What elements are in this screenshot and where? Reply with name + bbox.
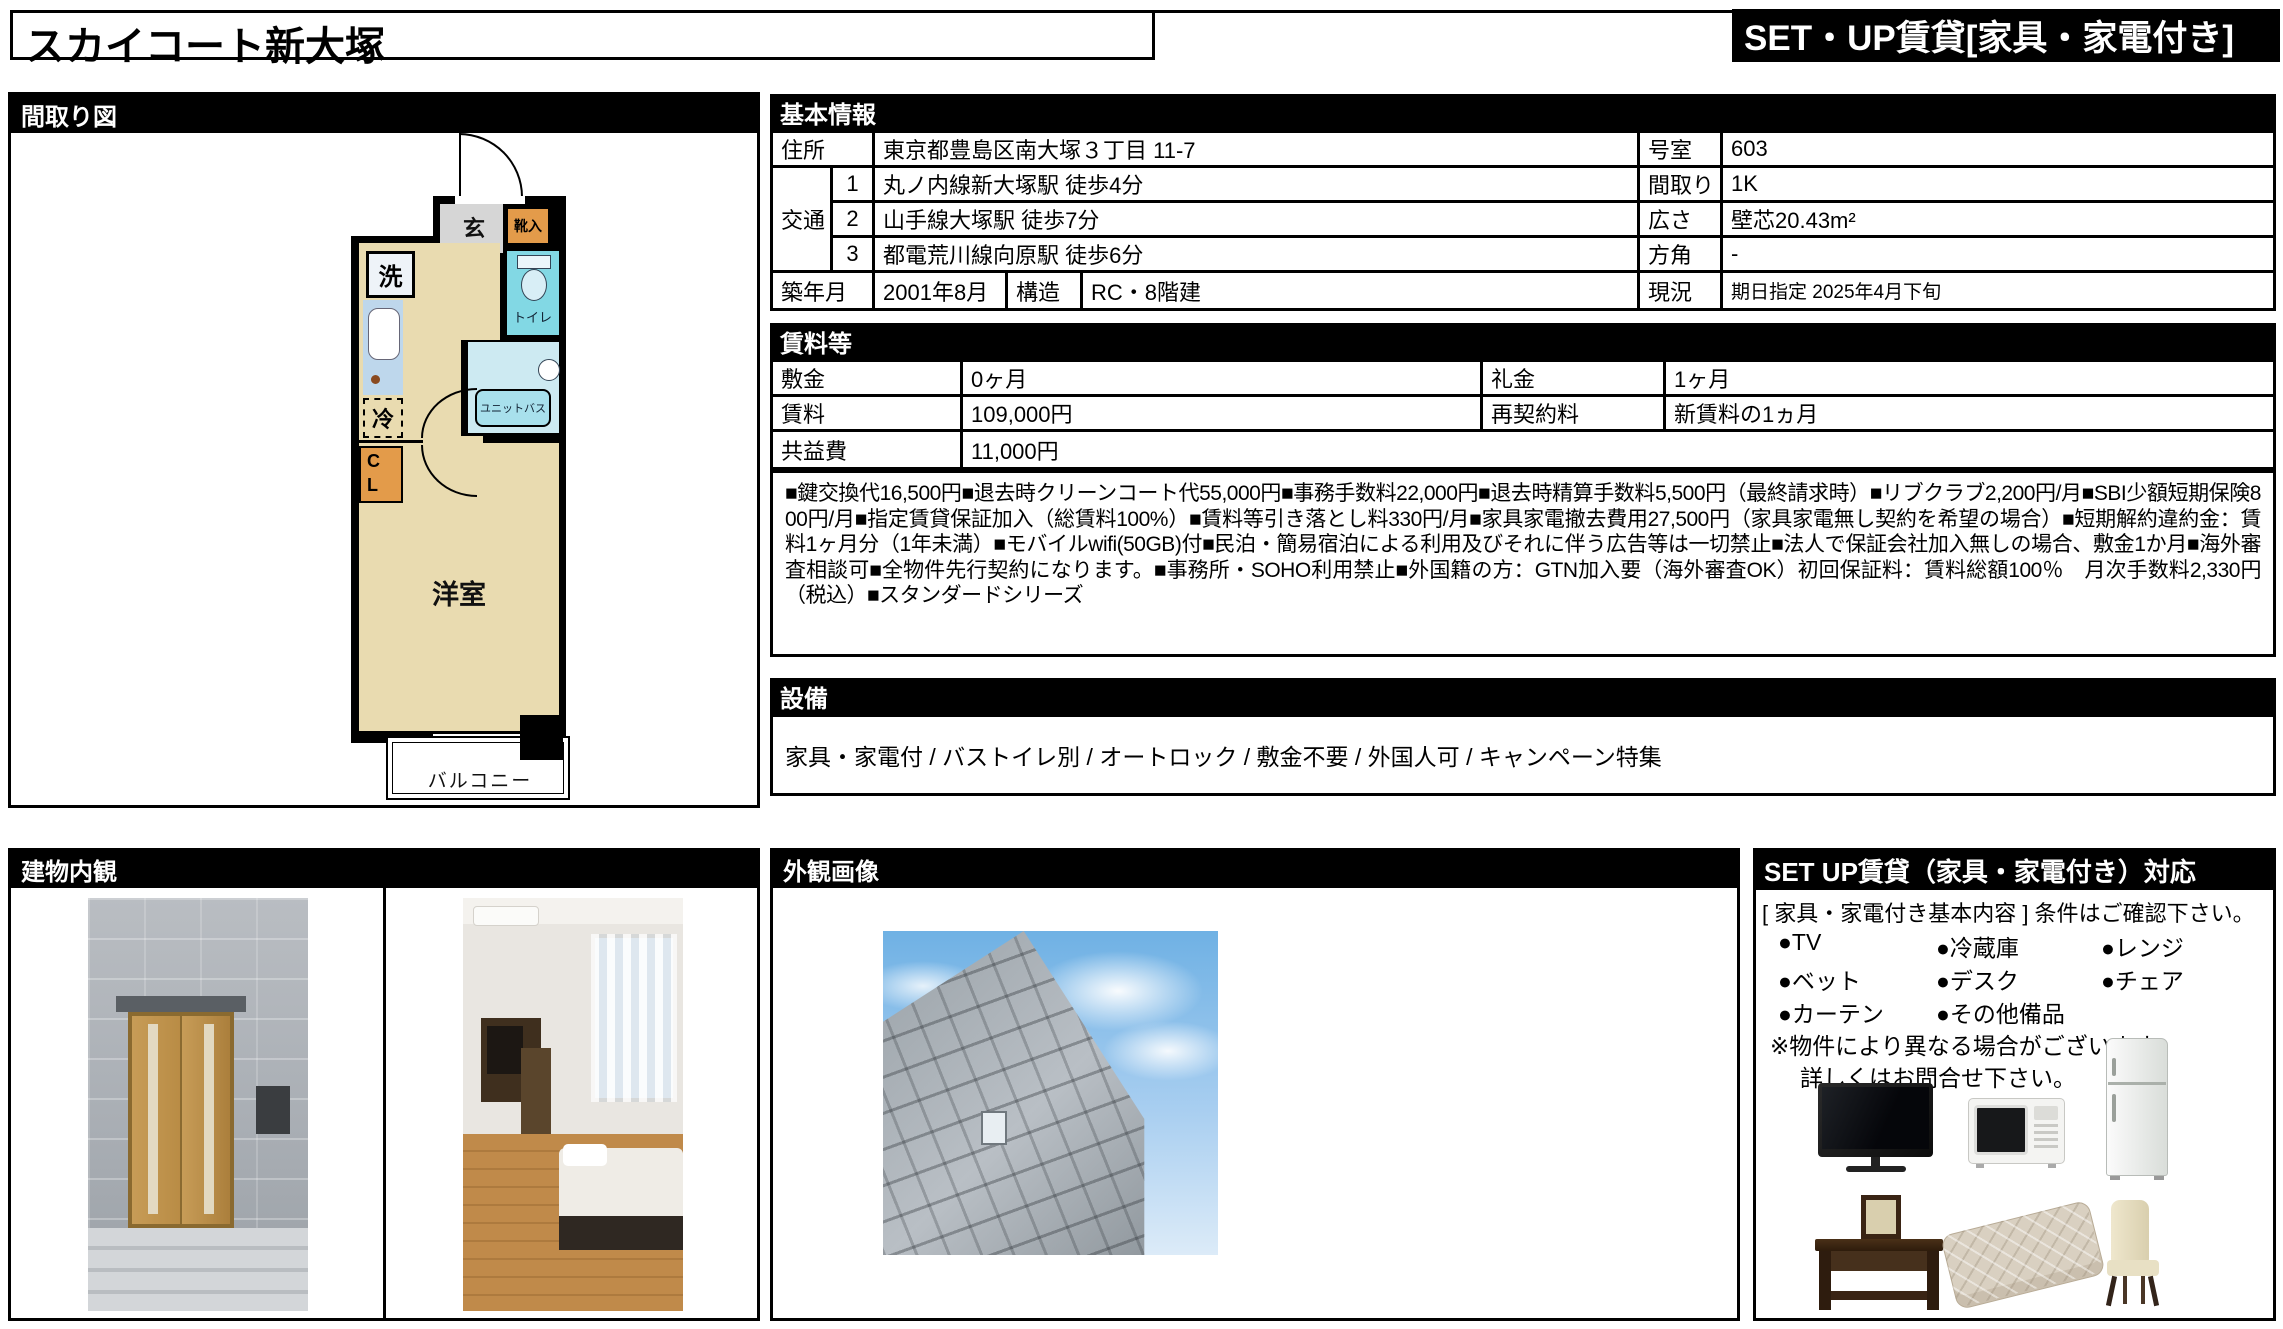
shoe-box: 靴入 bbox=[506, 207, 550, 245]
interior-divider bbox=[383, 888, 386, 1318]
genkan-label: 玄 bbox=[463, 211, 485, 243]
mattress-image bbox=[1953, 1201, 2090, 1310]
pillar bbox=[520, 715, 563, 760]
built-value: 2001年8月 bbox=[875, 273, 1005, 308]
washer-label: 洗 bbox=[379, 257, 403, 292]
burner-dot bbox=[371, 375, 380, 384]
kitchen-sink bbox=[368, 308, 400, 360]
facilities-header-text: 設備 bbox=[780, 679, 828, 714]
size-value: 壁芯20.43m² bbox=[1723, 203, 2273, 235]
exterior-panel: 外観画像 bbox=[770, 848, 1740, 1321]
common-fee-label: 共益費 bbox=[773, 432, 960, 467]
access-text-2: 山手線大塚駅 徒歩7分 bbox=[875, 203, 1637, 235]
room-no-label: 号室 bbox=[1640, 133, 1720, 165]
entrance-door-arc bbox=[459, 133, 523, 197]
flyer-page: スカイコート新大塚 SET・UP賃貸[家具・家電付き] 間取り図 玄 靴入 bbox=[0, 0, 2283, 1329]
tv-image bbox=[1818, 1083, 1933, 1173]
rent-value: 109,000円 bbox=[963, 397, 1480, 429]
status-value: 期日指定 2025年4月下旬 bbox=[1723, 273, 2273, 308]
setup-item-curtain: ●カーテン bbox=[1778, 995, 1884, 1029]
key-money-value: 1ヶ月 bbox=[1666, 362, 2273, 394]
balcony-label: バルコニー bbox=[388, 766, 572, 793]
setup-item-desk: ●デスク bbox=[1936, 962, 2019, 996]
setup-item-fridge: ●冷蔵庫 bbox=[1936, 929, 2019, 963]
exterior-header: 外観画像 bbox=[773, 851, 1737, 888]
shoe-box-label: 靴入 bbox=[514, 216, 542, 236]
toilet-room: トイレ bbox=[507, 251, 559, 335]
access-no-3: 3 bbox=[833, 238, 872, 270]
setup-panel: SET UP賃貸（家具・家電付き）対応 [ 家具・家電付き基本内容 ] 条件はご… bbox=[1753, 848, 2276, 1321]
exterior-header-text: 外観画像 bbox=[783, 852, 879, 887]
photo-room-interior bbox=[463, 898, 683, 1311]
status-label: 現況 bbox=[1640, 273, 1720, 308]
renewal-value: 新賃料の1ヵ月 bbox=[1666, 397, 2273, 429]
unit-bath: ユニットバス bbox=[468, 342, 559, 433]
title-box: スカイコート新大塚 bbox=[10, 10, 1155, 60]
fridge-image bbox=[2106, 1038, 2168, 1180]
facilities-header: 設備 bbox=[770, 678, 2276, 714]
size-label: 広さ bbox=[1640, 203, 1720, 235]
rent-header-text: 賃料等 bbox=[780, 324, 852, 359]
structure-value: RC・8階建 bbox=[1083, 273, 1637, 308]
floorplan-drawing: 玄 靴入 洗 冷 トイレ bbox=[11, 95, 757, 805]
setup-badge: SET・UP賃貸[家具・家電付き] bbox=[1732, 9, 2280, 62]
basic-info-table: 基本情報 住所 東京都豊島区南大塚３丁目 11-7 交通 1 丸ノ内線新大塚駅 … bbox=[770, 94, 2276, 311]
interior-header: 建物内観 bbox=[11, 851, 757, 888]
basic-info-header-text: 基本情報 bbox=[780, 95, 876, 130]
setup-item-other: ●その他備品 bbox=[1936, 995, 2065, 1029]
floorplan-panel: 間取り図 玄 靴入 洗 bbox=[8, 92, 760, 808]
direction-label: 方角 bbox=[1640, 238, 1720, 270]
access-no-1: 1 bbox=[833, 168, 872, 200]
microwave-image bbox=[1968, 1098, 2065, 1168]
desk-image bbox=[1815, 1195, 1943, 1310]
closet: C L bbox=[359, 446, 403, 503]
deposit-value: 0ヶ月 bbox=[963, 362, 1480, 394]
setup-header: SET UP賃貸（家具・家電付き）対応 bbox=[1756, 851, 2273, 890]
access-label: 交通 bbox=[773, 168, 830, 270]
closet-label-c: C bbox=[367, 448, 401, 474]
photo-building-exterior bbox=[883, 931, 1218, 1255]
room-no-value: 603 bbox=[1723, 133, 2273, 165]
washer-spot: 洗 bbox=[366, 251, 415, 298]
closet-label-l: L bbox=[367, 474, 401, 496]
chair-image bbox=[2101, 1200, 2173, 1308]
facilities-text: 家具・家電付 / バストイレ別 / オートロック / 敷金不要 / 外国人可 /… bbox=[773, 738, 1662, 772]
deposit-label: 敷金 bbox=[773, 362, 960, 394]
rent-header: 賃料等 bbox=[770, 323, 2276, 359]
toilet-label: トイレ bbox=[513, 307, 552, 326]
layout-label: 間取り bbox=[1640, 168, 1720, 200]
interior-panel: 建物内観 bbox=[8, 848, 760, 1321]
page-title: スカイコート新大塚 bbox=[25, 14, 385, 72]
built-label: 築年月 bbox=[773, 273, 872, 308]
western-room-label: 洋室 bbox=[359, 573, 559, 612]
setup-item-bed: ●ベット bbox=[1778, 962, 1861, 996]
direction-value: - bbox=[1723, 238, 2273, 270]
basic-info-header: 基本情報 bbox=[770, 94, 2276, 130]
address-label: 住所 bbox=[773, 133, 872, 165]
setup-item-chair: ●チェア bbox=[2101, 962, 2184, 996]
unit-bath-label: ユニットバス bbox=[480, 400, 546, 416]
access-text-1: 丸ノ内線新大塚駅 徒歩4分 bbox=[875, 168, 1637, 200]
photo-building-entrance bbox=[88, 898, 308, 1311]
access-text-3: 都電荒川線向原駅 徒歩6分 bbox=[875, 238, 1637, 270]
structure-label: 構造 bbox=[1008, 273, 1080, 308]
rent-label: 賃料 bbox=[773, 397, 960, 429]
access-no-2: 2 bbox=[833, 203, 872, 235]
layout-value: 1K bbox=[1723, 168, 2273, 200]
address-value: 東京都豊島区南大塚３丁目 11-7 bbox=[875, 133, 1637, 165]
setup-item-range: ●レンジ bbox=[2101, 929, 2184, 963]
key-money-label: 礼金 bbox=[1483, 362, 1663, 394]
interior-header-text: 建物内観 bbox=[21, 852, 117, 887]
setup-item-tv: ●TV bbox=[1778, 929, 1821, 956]
fridge-label: 冷 bbox=[372, 402, 394, 434]
fridge-spot: 冷 bbox=[363, 398, 403, 438]
renewal-label: 再契約料 bbox=[1483, 397, 1663, 429]
facilities-box: 家具・家電付 / バストイレ別 / オートロック / 敷金不要 / 外国人可 /… bbox=[770, 714, 2276, 796]
setup-header-text: SET UP賃貸（家具・家電付き）対応 bbox=[1764, 852, 2196, 889]
common-fee-value: 11,000円 bbox=[963, 432, 2273, 467]
rent-table: 賃料等 敷金 0ヶ月 礼金 1ヶ月 賃料 109,000円 再契約料 新賃料の1… bbox=[770, 323, 2276, 470]
setup-subtitle: [ 家具・家電付き基本内容 ] 条件はご確認下さい。 bbox=[1762, 896, 2255, 928]
rent-notes: ■鍵交換代16,500円■退去時クリーンコート代55,000円■事務手数料22,… bbox=[770, 470, 2276, 657]
setup-badge-text: SET・UP賃貸[家具・家電付き] bbox=[1744, 10, 2234, 61]
